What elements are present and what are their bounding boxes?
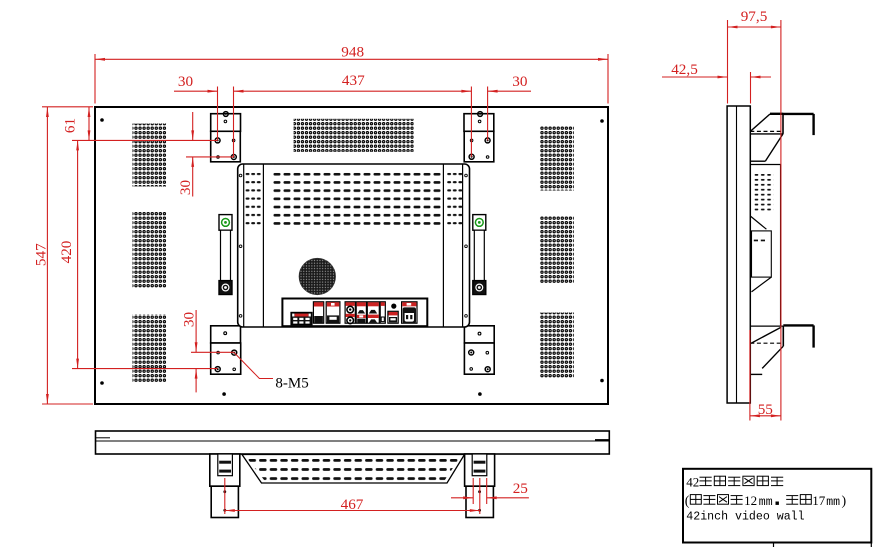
- svg-text:30: 30: [512, 73, 528, 90]
- svg-text:42: 42: [686, 474, 699, 489]
- svg-text:547: 547: [33, 243, 50, 266]
- svg-text:55: 55: [758, 401, 773, 418]
- svg-text:30: 30: [177, 180, 194, 196]
- svg-text:42inch video wall: 42inch video wall: [686, 511, 804, 524]
- svg-text:467: 467: [341, 496, 364, 513]
- svg-text:mm: mm: [826, 496, 840, 509]
- svg-text:17: 17: [812, 493, 826, 508]
- svg-text:): ): [842, 494, 847, 509]
- svg-text:12: 12: [744, 493, 757, 508]
- svg-text:42,5: 42,5: [671, 61, 698, 78]
- svg-text:30: 30: [178, 73, 194, 90]
- svg-text:8-M5: 8-M5: [275, 376, 308, 392]
- svg-text:30: 30: [181, 312, 198, 328]
- svg-text:(: (: [685, 494, 690, 509]
- svg-text:61: 61: [62, 118, 79, 133]
- svg-text:420: 420: [58, 240, 75, 263]
- svg-text:948: 948: [341, 44, 364, 61]
- svg-text:25: 25: [513, 480, 528, 497]
- svg-text:mm: mm: [759, 496, 773, 509]
- svg-text:437: 437: [342, 72, 365, 89]
- svg-text:97,5: 97,5: [741, 8, 768, 25]
